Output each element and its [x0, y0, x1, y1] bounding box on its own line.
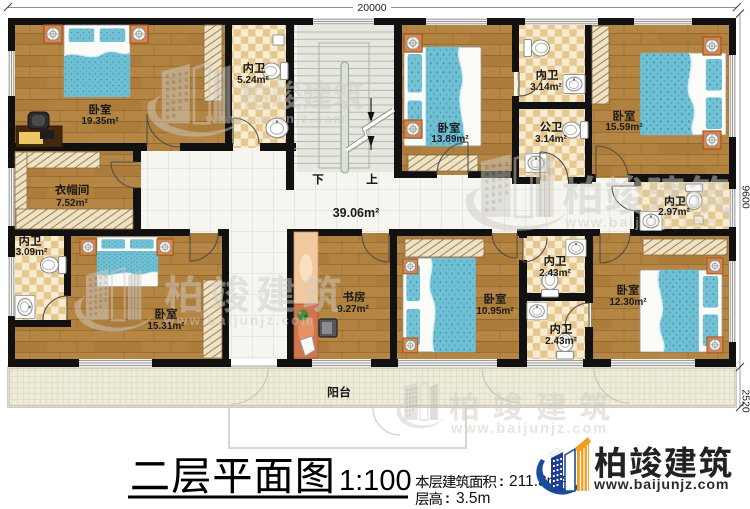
svg-text:www.baijunjz.com: www.baijunjz.com [564, 214, 718, 230]
svg-text:15.59m²: 15.59m² [605, 122, 643, 133]
svg-text:5.24m²: 5.24m² [237, 75, 269, 86]
svg-text:3.09m²: 3.09m² [16, 247, 48, 258]
svg-text:12.30m²: 12.30m² [609, 297, 647, 308]
svg-text:10.95m²: 10.95m² [476, 306, 514, 317]
svg-text::: : [499, 473, 504, 490]
svg-text:15.31m²: 15.31m² [147, 321, 185, 332]
svg-text:19.35m²: 19.35m² [81, 116, 119, 127]
svg-text:3.14m²: 3.14m² [530, 82, 562, 93]
svg-text:39.06m²: 39.06m² [333, 206, 380, 220]
svg-text:2520: 2520 [740, 389, 750, 413]
svg-text:7.52m²: 7.52m² [56, 198, 88, 209]
svg-text:2.43m²: 2.43m² [539, 268, 571, 279]
svg-text:www.baijunjz.com: www.baijunjz.com [593, 477, 729, 493]
svg-text:9.27m²: 9.27m² [337, 304, 369, 315]
svg-text:2.97m²: 2.97m² [658, 207, 690, 218]
svg-text:13.89m²: 13.89m² [431, 134, 469, 145]
svg-text:www.baijunjz.com: www.baijunjz.com [163, 313, 316, 328]
svg-text:20000: 20000 [357, 2, 386, 14]
svg-text:1:100: 1:100 [339, 465, 412, 497]
svg-text:3.14m²: 3.14m² [535, 134, 567, 145]
svg-text::: : [445, 490, 450, 507]
svg-text:2.43m²: 2.43m² [545, 336, 577, 347]
svg-text:9600: 9600 [740, 185, 750, 209]
svg-text:3.5m: 3.5m [456, 490, 490, 507]
svg-text:www.baijunjz.com: www.baijunjz.com [450, 421, 608, 437]
svg-text:www.baijunjz.com: www.baijunjz.com [205, 111, 347, 126]
